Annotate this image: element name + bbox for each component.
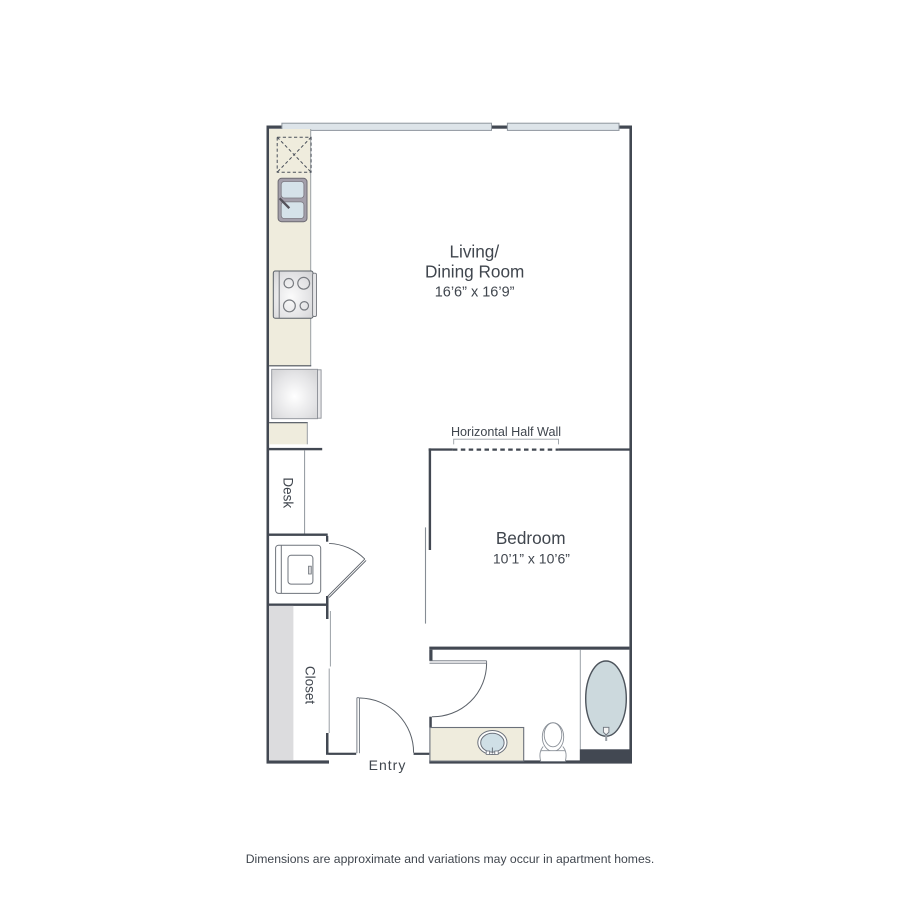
svg-text:Entry: Entry — [369, 757, 407, 773]
svg-text:Living/: Living/ — [449, 242, 499, 262]
svg-text:Desk: Desk — [280, 477, 295, 508]
svg-text:Horizontal Half Wall: Horizontal Half Wall — [451, 425, 561, 439]
svg-text:Dining Room: Dining Room — [425, 262, 524, 282]
svg-text:10’1” x 10’6”: 10’1” x 10’6” — [493, 551, 570, 567]
svg-text:Bedroom: Bedroom — [496, 528, 566, 548]
svg-text:16’6” x 16’9”: 16’6” x 16’9” — [435, 285, 515, 301]
svg-text:Closet: Closet — [302, 666, 317, 705]
svg-text:Dimensions are approximate and: Dimensions are approximate and variation… — [246, 852, 654, 866]
